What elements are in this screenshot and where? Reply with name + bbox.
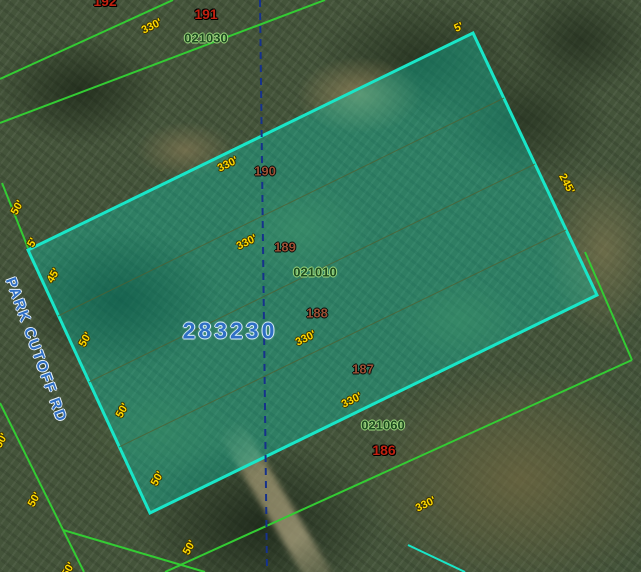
lot-number-label: 192	[93, 0, 116, 8]
lot-number-label: 190	[254, 165, 276, 178]
parcel-id-label: 283230	[183, 320, 278, 343]
lot-number-label: 189	[274, 241, 296, 254]
subdivision-number-label: 021010	[293, 266, 336, 279]
lot-number-label: 188	[306, 307, 328, 320]
parcel-lines-layer	[0, 0, 641, 572]
lot-number-label: 187	[352, 363, 374, 376]
block-boundary-line	[2, 183, 28, 248]
subdivision-number-label: 021030	[184, 32, 227, 45]
subdivision-number-label: 021060	[361, 419, 404, 432]
road-edge-line	[0, 403, 84, 572]
lot-number-label: 186	[372, 443, 395, 457]
block-boundary-line	[585, 252, 632, 360]
lot-number-label: 191	[194, 7, 217, 21]
parcel-boundary-segment	[408, 545, 465, 572]
gis-map-view: 192 191 186 190 189 188 187 021030 02101…	[0, 0, 641, 572]
block-boundary-line	[0, 0, 325, 123]
